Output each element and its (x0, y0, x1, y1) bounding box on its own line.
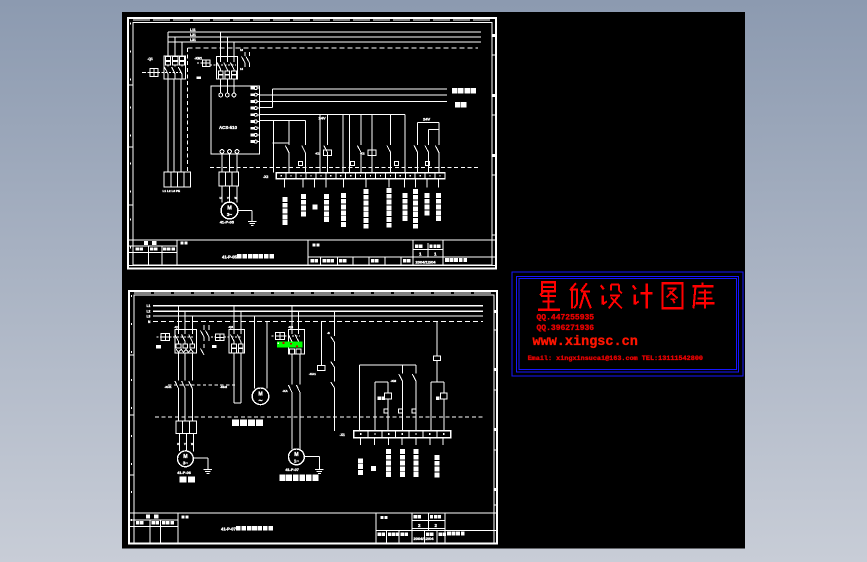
svg-text:V: V (184, 442, 186, 446)
svg-text:-Q2: -Q2 (228, 325, 233, 329)
svg-text:3~: 3~ (227, 212, 233, 217)
svg-text:-KM: -KM (391, 379, 397, 383)
svg-text:M: M (294, 452, 298, 458)
svg-text:V: V (227, 196, 229, 200)
svg-text:-X2: -X2 (263, 175, 268, 179)
svg-text:-Q3: -Q3 (288, 325, 293, 329)
svg-text:M: M (227, 206, 232, 212)
svg-text:41-P-06: 41-P-06 (177, 471, 191, 475)
svg-text:41-P-07: 41-P-07 (221, 527, 237, 532)
svg-text:QQ.396271936: QQ.396271936 (537, 324, 595, 333)
svg-text:-KM1: -KM1 (194, 57, 202, 61)
svg-text:41-P-07: 41-P-07 (285, 468, 299, 472)
svg-text:M: M (183, 454, 187, 460)
svg-text:~: ~ (258, 398, 262, 405)
svg-text:2004/12/04: 2004/12/04 (414, 536, 435, 541)
svg-text:1~: 1~ (294, 459, 299, 464)
svg-text:L2: L2 (147, 310, 151, 314)
svg-text:L11: L11 (190, 28, 196, 32)
svg-text:U: U (220, 196, 222, 200)
svg-text:-KH2: -KH2 (220, 385, 227, 389)
svg-text:L1: L1 (147, 304, 151, 308)
svg-text:-X1: -X1 (340, 433, 345, 437)
svg-text:41-P-05: 41-P-05 (222, 255, 238, 260)
svg-text:3~: 3~ (183, 460, 188, 465)
svg-text:-S: -S (327, 331, 330, 335)
svg-text:-KA1: -KA1 (309, 372, 316, 376)
svg-text:-KA: -KA (282, 389, 288, 393)
svg-text:ACS-510: ACS-510 (219, 125, 238, 130)
svg-text:www.xingsc.cn: www.xingsc.cn (533, 335, 638, 350)
svg-text:L21: L21 (190, 33, 196, 37)
svg-text:-K2: -K2 (360, 152, 365, 156)
svg-text:U: U (177, 442, 179, 446)
svg-text:24V: 24V (423, 117, 430, 122)
svg-text:QQ.447255935: QQ.447255935 (537, 314, 595, 323)
svg-text:2004/12/04: 2004/12/04 (416, 260, 437, 265)
svg-text:L1 L2 L3 PE: L1 L2 L3 PE (163, 189, 181, 193)
svg-text:-Q1: -Q1 (174, 325, 179, 329)
svg-text:-KH1: -KH1 (165, 385, 172, 389)
svg-text:41-P-05: 41-P-05 (220, 220, 235, 225)
svg-text:L31: L31 (190, 38, 196, 42)
svg-text:Email: xingxinsucai@163.com TE: Email: xingxinsucai@163.com TEL:13111542… (528, 355, 703, 363)
svg-text:-Q1: -Q1 (148, 57, 154, 61)
svg-text:M: M (258, 392, 262, 398)
svg-text:L3: L3 (147, 315, 151, 319)
svg-text:-K1: -K1 (315, 152, 320, 156)
